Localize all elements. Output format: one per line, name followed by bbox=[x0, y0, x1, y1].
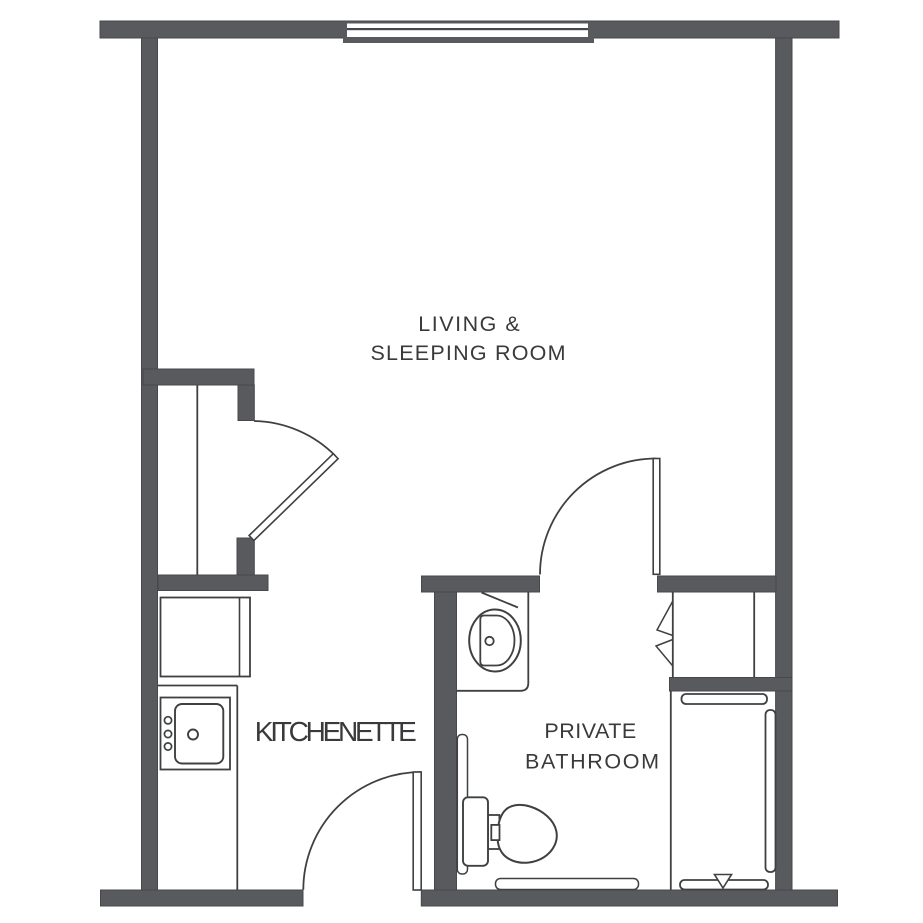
svg-text:LIVING &: LIVING & bbox=[418, 312, 520, 336]
svg-text:SLEEPING ROOM: SLEEPING ROOM bbox=[371, 341, 566, 365]
svg-text:KITCHENETTE: KITCHENETTE bbox=[255, 716, 417, 747]
svg-text:BATHROOM: BATHROOM bbox=[525, 750, 659, 774]
svg-text:PRIVATE: PRIVATE bbox=[544, 719, 636, 743]
